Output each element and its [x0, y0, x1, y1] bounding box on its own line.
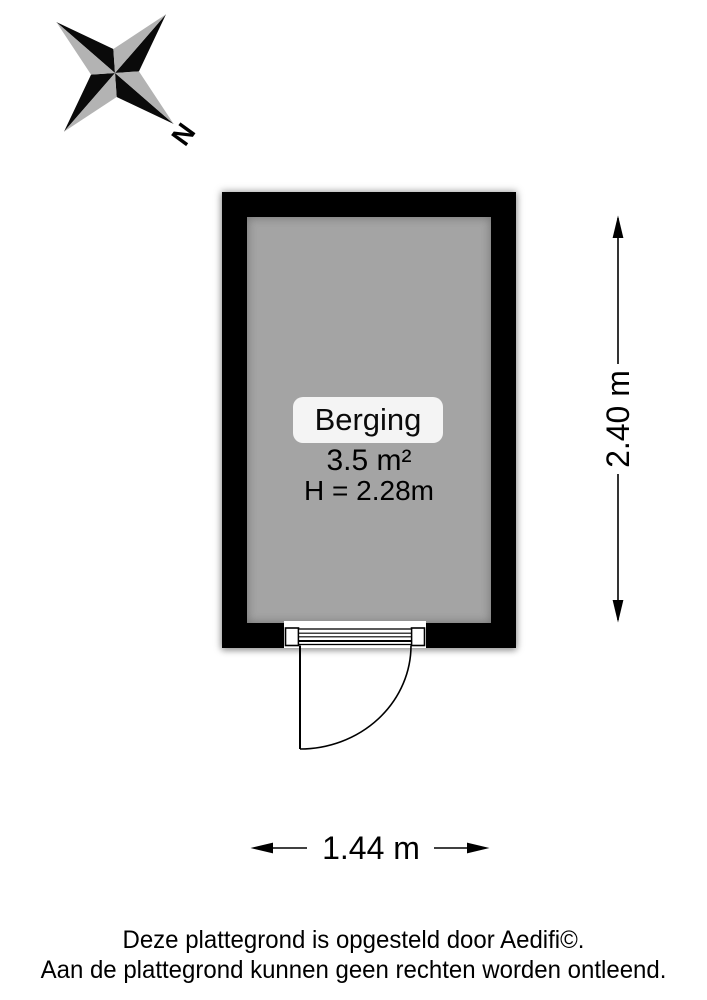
compass-rose — [56, 14, 173, 131]
compass-north-label: N — [165, 117, 201, 150]
room-area-label: 3.5 m² — [247, 446, 491, 476]
room-name-badge: Berging — [293, 397, 443, 443]
compass-star-gray-points — [56, 14, 173, 131]
dimension-width: 1.44 m — [251, 830, 490, 866]
dimension-width-arrow-right — [467, 843, 490, 854]
disclaimer: Deze plattegrond is opgesteld door Aedif… — [14, 925, 693, 985]
dimension-height-label: 2.40 m — [600, 370, 636, 468]
room-name-label: Berging — [315, 402, 422, 438]
door-opening — [284, 621, 426, 648]
dimension-height-arrow-bottom — [613, 600, 624, 623]
door-swing-arc — [300, 646, 411, 750]
floorplan-page: N 2.40 m 1.44 m — [0, 0, 707, 1000]
room-ceiling-height-label: H = 2.28m — [247, 477, 491, 505]
dimension-width-arrow-left — [251, 843, 274, 854]
dimension-height: 2.40 m — [600, 216, 636, 623]
compass-star-black-points — [56, 14, 173, 131]
dimension-width-label: 1.44 m — [322, 830, 420, 866]
disclaimer-line-1: Deze plattegrond is opgesteld door Aedif… — [14, 925, 693, 955]
disclaimer-line-2: Aan de plattegrond kunnen geen rechten w… — [14, 955, 693, 985]
dimension-height-arrow-top — [613, 216, 624, 239]
